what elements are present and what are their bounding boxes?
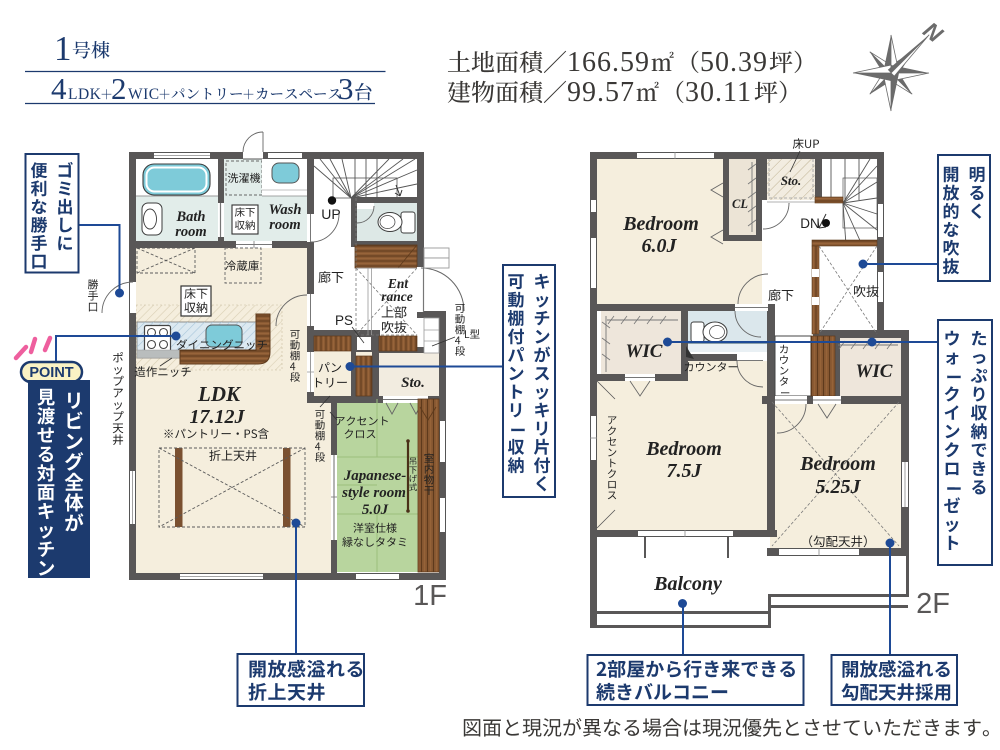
svg-text:Bedroom: Bedroom [645, 438, 722, 460]
svg-text:Bedroom: Bedroom [799, 453, 876, 475]
svg-text:WIC: WIC [626, 341, 663, 362]
svg-text:WIC: WIC [128, 86, 160, 103]
svg-text:room: room [269, 217, 300, 233]
svg-text:Japanese-: Japanese- [343, 468, 407, 484]
svg-text:Bedroom: Bedroom [622, 213, 699, 235]
svg-text:LDK: LDK [197, 382, 242, 406]
svg-text:5.0J: 5.0J [362, 502, 389, 518]
svg-text:rance: rance [381, 289, 413, 304]
svg-text:Wash: Wash [269, 202, 302, 218]
svg-text:50.39: 50.39 [700, 47, 768, 78]
svg-text:WIC: WIC [856, 361, 893, 382]
svg-text:1F: 1F [413, 580, 447, 612]
svg-text:CL: CL [732, 197, 748, 211]
svg-text:Sto.: Sto. [401, 375, 425, 391]
svg-text:4: 4 [51, 71, 67, 106]
svg-text:PS: PS [335, 313, 353, 328]
svg-text:LDK: LDK [68, 86, 102, 103]
svg-text:2F: 2F [916, 588, 950, 620]
svg-text:5.25J: 5.25J [816, 476, 862, 498]
svg-text:17.12J: 17.12J [190, 406, 246, 428]
svg-text:Bath: Bath [175, 209, 205, 225]
svg-text:room: room [175, 224, 206, 240]
svg-text:166.59: 166.59 [567, 47, 650, 78]
svg-text:style room: style room [341, 485, 406, 501]
svg-text:99.57: 99.57 [567, 77, 635, 108]
svg-text:6.0J: 6.0J [642, 235, 678, 257]
svg-text:DN: DN [800, 216, 820, 231]
svg-text:Balcony: Balcony [653, 573, 722, 595]
svg-text:7.5J: 7.5J [667, 460, 703, 482]
svg-text:3: 3 [338, 71, 354, 106]
svg-text:2: 2 [111, 71, 127, 106]
svg-text:POINT: POINT [29, 365, 73, 381]
svg-text:30.11: 30.11 [685, 77, 752, 108]
svg-text:1: 1 [54, 29, 72, 68]
svg-text:UP: UP [321, 206, 340, 222]
svg-text:Sto.: Sto. [781, 173, 802, 188]
